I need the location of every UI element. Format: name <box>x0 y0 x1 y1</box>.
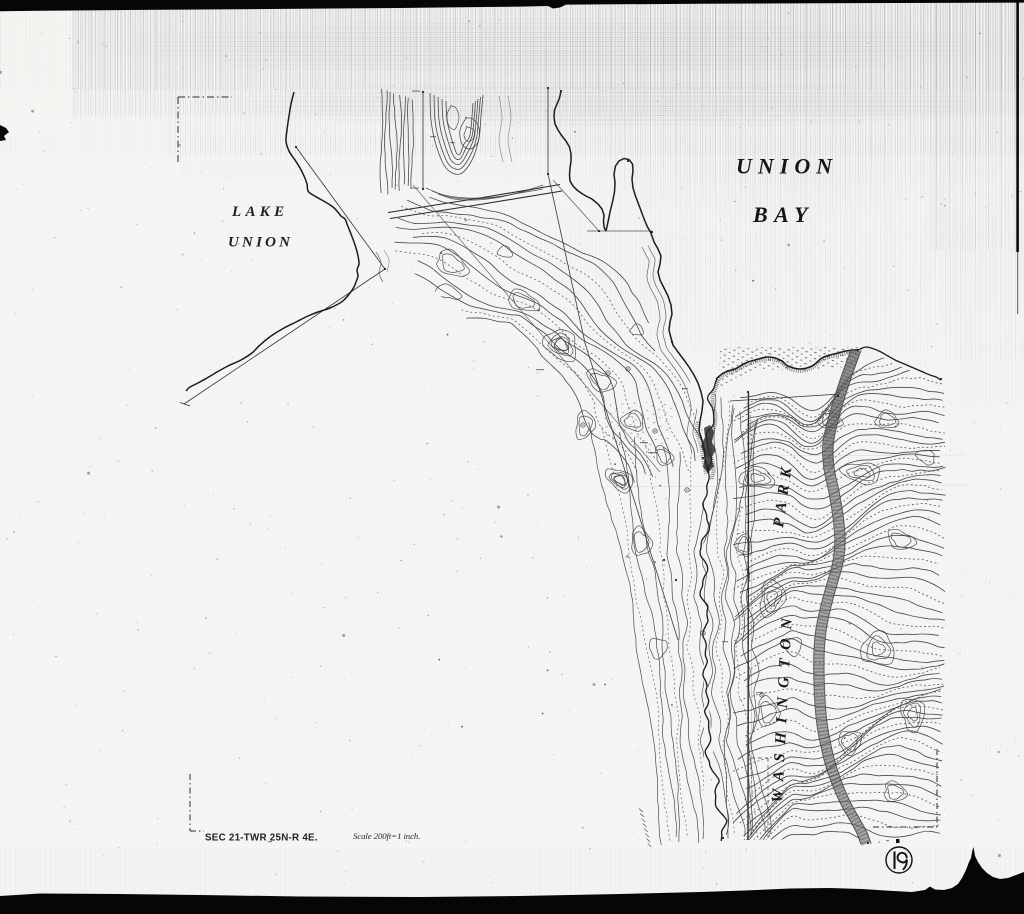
svg-text:UNION: UNION <box>736 154 838 179</box>
svg-text:Scale 200ft=1 inch.: Scale 200ft=1 inch. <box>353 831 420 841</box>
svg-text:UNION: UNION <box>228 235 293 251</box>
svg-text:LAKE: LAKE <box>231 204 288 220</box>
svg-text:BAY: BAY <box>752 202 814 227</box>
svg-text:SEC 21-TWR 25N-R 4E.: SEC 21-TWR 25N-R 4E. <box>205 833 318 844</box>
